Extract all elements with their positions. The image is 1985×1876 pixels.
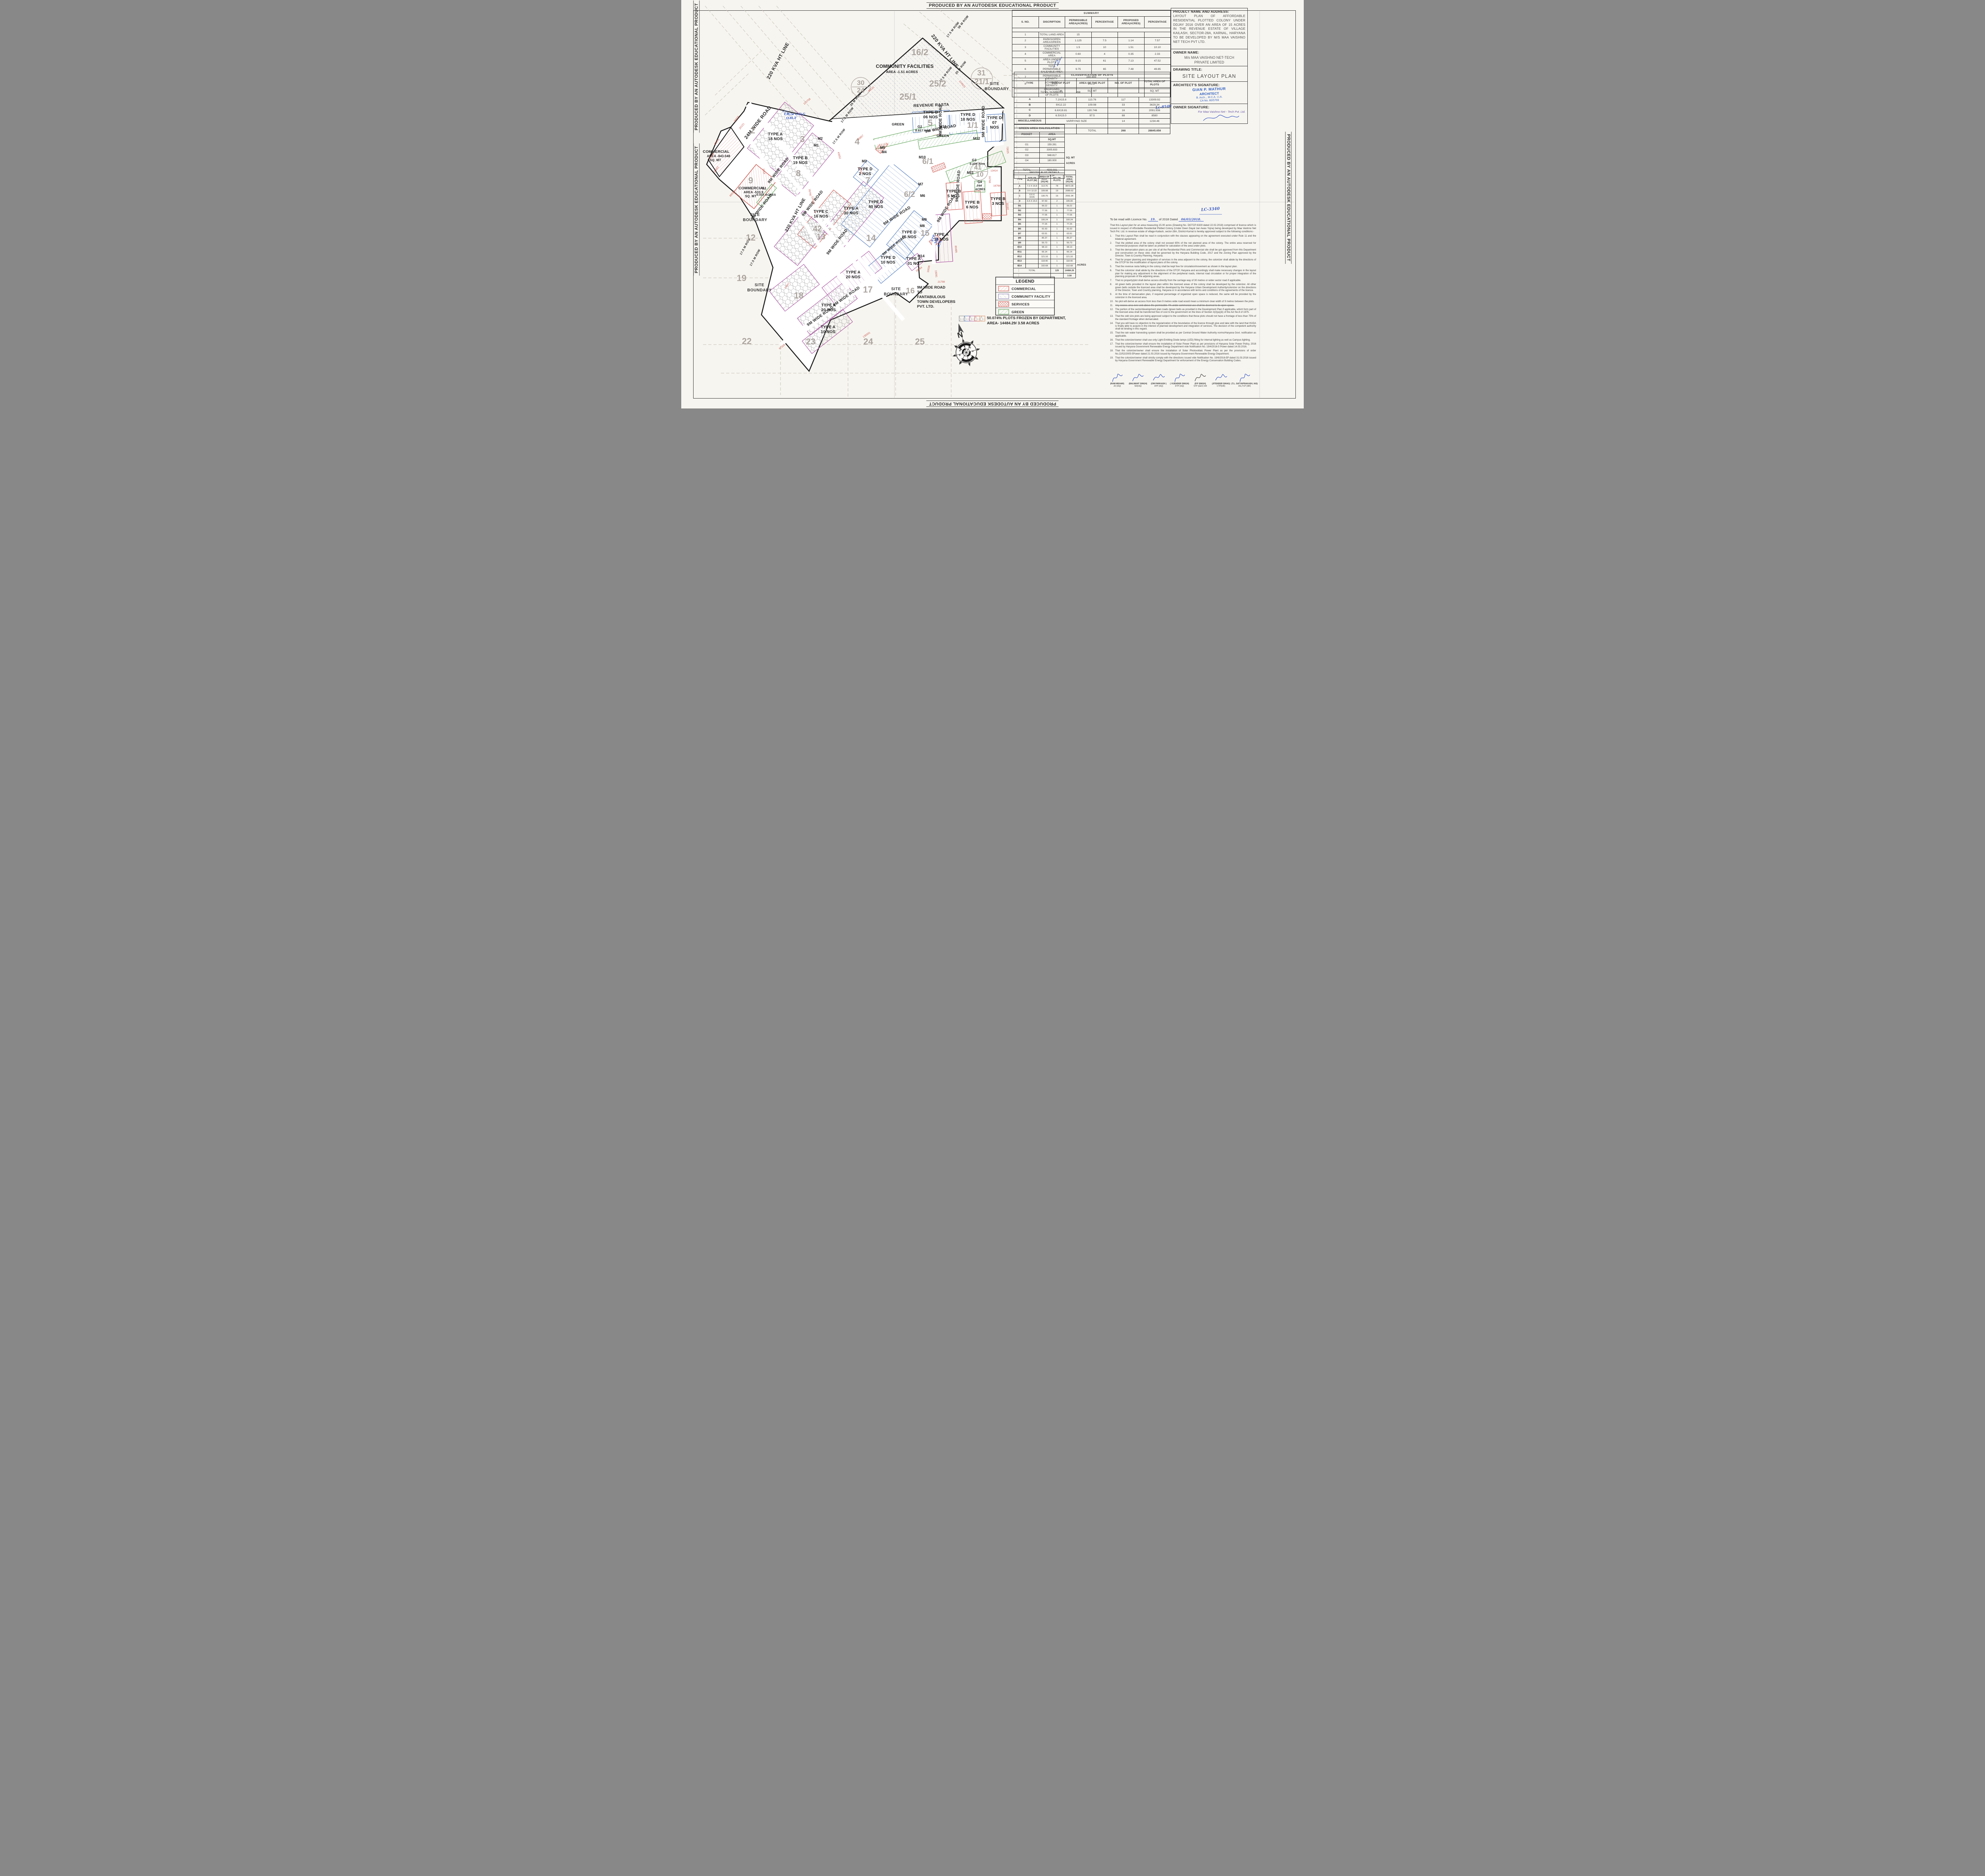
plan-label-dim: 73025 xyxy=(1006,146,1009,154)
cell: 77.05 xyxy=(1038,213,1050,218)
cell: M8 xyxy=(1014,236,1026,241)
cell: 180.000 xyxy=(1039,158,1065,164)
cell: 268 xyxy=(1108,128,1139,134)
cell: 3629.34 xyxy=(1139,102,1170,108)
cell: 98.13 xyxy=(1063,245,1075,250)
cell: 8580 xyxy=(1139,113,1170,119)
cell: 113.76 xyxy=(1077,97,1108,103)
condition-item: 9.At the time of demarcation plan, if re… xyxy=(1110,293,1256,299)
spacer xyxy=(1012,28,1171,32)
plan-label-site: BOUNDARY xyxy=(747,288,771,293)
frozen-header: TOTAL AREA [SQ.M] xyxy=(1063,175,1075,184)
cell: 121.16 xyxy=(1063,254,1075,259)
cell: 28845.656 xyxy=(1139,128,1170,134)
condition-item: 12.The portion of the sector/development… xyxy=(1110,308,1256,314)
plan-label-area: G2 xyxy=(917,125,922,129)
plan-label-road: 36 M ROW xyxy=(957,14,969,29)
signature-squiggle xyxy=(1214,372,1228,383)
cell: 77.56 xyxy=(1063,208,1075,213)
plan-label-mp: M5 xyxy=(880,146,885,150)
plan-label-fant: TOWN DEVELOPERS xyxy=(917,300,955,304)
cell: 1 xyxy=(1051,213,1063,218)
cell: 102.68 xyxy=(1063,264,1075,268)
plan-label-mp: M3 xyxy=(862,159,867,163)
condition-item: 8.All green belts provided in the layout… xyxy=(1110,283,1256,292)
cell: M11 xyxy=(1014,250,1026,254)
cell: G3 xyxy=(1014,153,1040,158)
plan-label-area: 6 NOS xyxy=(966,205,978,210)
cell: 77.56 xyxy=(1038,208,1050,213)
cell: M10 xyxy=(1014,245,1026,250)
plan-label-site: SITE xyxy=(891,287,901,291)
cell: D xyxy=(1014,199,1026,204)
project-heading: PROJECT NAME AND ADDRESS: xyxy=(1173,10,1245,13)
plan-label-site: SITE xyxy=(990,82,999,86)
summary-title: SUMMARY xyxy=(1012,10,1171,17)
licence-prefix: To be read with Licence No. xyxy=(1110,218,1147,221)
plan-label-kh: 8 xyxy=(796,168,801,178)
signature-1: (RAM MEHAR)JD (HQ) xyxy=(1107,372,1127,387)
plan-label-road: 9M WIDE ROAD xyxy=(981,106,986,137)
cell: 1 xyxy=(1051,245,1063,250)
cell: 7.57 xyxy=(1144,37,1171,44)
cell: 7.5 xyxy=(1091,37,1118,44)
plan-label-area: COMMUNITY FACILITIES xyxy=(876,64,934,69)
plan-label-kh: 22 xyxy=(742,336,752,346)
plan-label-road: 9M WIDE ROAD xyxy=(939,104,943,136)
plan-label-kh: 18 xyxy=(794,291,804,300)
cell: 7.2 X 15.8 xyxy=(1026,184,1038,189)
plan-label-site: SITE xyxy=(755,283,764,287)
cell: SQ.MT xyxy=(1039,137,1065,142)
cell: 6.5X15.0 xyxy=(1045,113,1077,119)
plan-label-kh: 1/1 xyxy=(967,121,978,130)
cell: 159.281 xyxy=(1039,142,1065,148)
legend-swatch-community xyxy=(998,294,1009,299)
plan-label-dim: 15091 xyxy=(934,270,938,278)
cell: 14 xyxy=(1108,119,1139,124)
plan-label-dim: 10036 xyxy=(927,265,931,273)
plan-label-mp: M11 xyxy=(967,171,973,175)
classification-unit: M xyxy=(1045,89,1077,93)
cell: 109.98 xyxy=(1038,189,1050,193)
condition-item: 3.That the demarcation plans as per site… xyxy=(1110,248,1256,257)
condition-item: 4.That for proper planning and integrati… xyxy=(1110,258,1256,264)
cell: VARRYING SIZE xyxy=(1045,119,1108,124)
plan-label-area: COMMERCIAL xyxy=(703,150,729,154)
cell: 1 xyxy=(1051,250,1063,254)
frozen-header: SIZE OF PLOT [M] xyxy=(1026,175,1038,184)
frozen-header: NO. OF PLOTS xyxy=(1051,175,1063,184)
cell: M1 xyxy=(1014,204,1026,208)
cell: M5 xyxy=(1014,222,1026,227)
cell: 1 xyxy=(1051,204,1063,208)
cell: 91.63 xyxy=(1038,227,1050,231)
cell: 2 xyxy=(1051,199,1063,204)
licence-number: 19. xyxy=(1148,218,1158,221)
plan-label-kh: 13 xyxy=(817,233,825,241)
plan-label-kh: 5 xyxy=(928,118,933,128)
cell: 117 xyxy=(1108,97,1139,103)
cell xyxy=(1014,164,1065,168)
cell: 2089.62 xyxy=(1063,189,1075,193)
cell: 130.746 xyxy=(1077,108,1108,114)
plan-label-road: 17.5 M ROW xyxy=(749,248,761,266)
cell: 1234.46 xyxy=(1139,119,1170,124)
cell: 55.73 xyxy=(1038,241,1050,245)
cell xyxy=(1014,274,1051,278)
cell: 9X12.22 xyxy=(1045,102,1077,108)
cell: 100.24 xyxy=(1063,218,1075,222)
cell: 1.51 xyxy=(1118,44,1145,51)
signature-4: ( VIJENDER SINGH)DTP (HQ) xyxy=(1169,372,1190,387)
plan-label-area: TYPE B xyxy=(793,156,807,160)
cell: 121.16 xyxy=(1038,254,1050,259)
cell: TOTAL xyxy=(1014,268,1051,274)
cell: 1 xyxy=(1051,241,1063,245)
cell: M14 xyxy=(1014,264,1026,268)
plan-label-mp: M4 xyxy=(882,150,887,154)
green-title: GREEN AREA CALCULATION xyxy=(1014,125,1065,132)
frozen-plots-swatch xyxy=(959,316,985,321)
legend-item: COMMUNITY FACILITY xyxy=(1012,295,1050,299)
cell xyxy=(1077,124,1108,128)
cell: 100.24 xyxy=(1038,218,1050,222)
plan-label-area: TYPE A xyxy=(821,303,836,308)
plan-label-kh: 16 xyxy=(906,287,915,295)
plan-label-kh: 30 xyxy=(857,79,865,87)
plan-label-area: 18 NOS xyxy=(768,137,783,141)
plan-label-area: TYPE D xyxy=(902,230,916,235)
cell xyxy=(1144,32,1171,38)
cell: 61 xyxy=(1091,58,1118,64)
plan-label-kh: 23 xyxy=(806,337,815,347)
cell: 9.15 xyxy=(1065,58,1092,64)
cell: 1 xyxy=(1051,227,1063,231)
cell: M13 xyxy=(1014,259,1026,264)
cell: 55.73 xyxy=(1063,241,1075,245)
plan-label-cmp: N xyxy=(956,331,964,340)
plan-label-area: 10 NOS xyxy=(881,260,896,265)
plan-label-area: TYPE B xyxy=(991,197,1005,201)
owner-heading: OWNER NAME: xyxy=(1173,50,1245,54)
plan-label-area: TYPE A xyxy=(934,233,949,237)
legend-swatch-services xyxy=(998,302,1009,306)
cell xyxy=(1108,124,1139,128)
plan-label-area: TYPE A xyxy=(846,270,861,275)
plan-label-road: 17.5 M ROW xyxy=(946,21,960,38)
plan-label-area: TYPE B xyxy=(965,200,979,205)
plan-label-area: TYPE A xyxy=(768,132,783,137)
cell: 66.14 xyxy=(1038,250,1050,254)
plan-label-area: SQ. MT xyxy=(745,195,757,198)
condition-item: 16.That the colonizer/owner shall use on… xyxy=(1110,339,1256,341)
condition-item: 17.That the colonizer/owner shall ensure… xyxy=(1110,343,1256,349)
plan-label-area: G4 xyxy=(977,180,982,184)
cell: 118.40 xyxy=(1038,259,1050,264)
signature-5: (P.P SINGH)STP (E&V) HR xyxy=(1190,372,1210,387)
owner-signature-section: OWNER SIGNATURE: For Maa Vaishno Net - T… xyxy=(1171,104,1247,123)
cell: 4 xyxy=(1091,51,1118,58)
cell xyxy=(1139,124,1170,128)
project-name-section: PROJECT NAME AND ADDRESS: LAYOUT PLAN OF… xyxy=(1171,8,1247,49)
drawing-title: SITE LAYOUT PLAN xyxy=(1173,73,1245,79)
cell: M7 xyxy=(1014,231,1026,236)
cell: 10 xyxy=(1091,44,1118,51)
plan-label-kh: 2 xyxy=(750,125,755,135)
classification-header: TYPE xyxy=(1014,78,1046,89)
architect-stamp: GIAN P. MATHUR ARCHITECT B. Arch.., M.C.… xyxy=(1173,87,1245,104)
plan-label-site: BOUNDARY xyxy=(884,292,908,297)
plan-label-mp: M2 xyxy=(818,137,823,141)
condition-item: 15.That the rain water harvesting system… xyxy=(1110,331,1256,337)
owner-name-section: OWNER NAME: M/s MAA VAISHNO NET-TECH PRI… xyxy=(1171,49,1247,66)
cell: 1.14 xyxy=(1118,37,1145,44)
title-block: PROJECT NAME AND ADDRESS: LAYOUT PLAN OF… xyxy=(1171,8,1248,124)
cell: 91.63 xyxy=(1063,227,1075,231)
classification-unit xyxy=(1014,89,1046,93)
licence-line: To be read with Licence No. 19. of 2018 … xyxy=(1110,218,1256,221)
plan-label-area: GREEN xyxy=(892,122,904,126)
condition-item: 18.That the colonizer/owner shall ensure… xyxy=(1110,349,1256,355)
cell: 109.98 xyxy=(1077,102,1108,108)
signature-7: (T.L. SATYAPRAKASH, IAS)DG,TCP (HR) xyxy=(1231,372,1258,387)
cell: B xyxy=(1014,189,1026,193)
cell: 10.10 xyxy=(1144,44,1171,51)
plan-label-kh: 42 xyxy=(813,225,822,233)
plan-label-kh: 24 xyxy=(857,87,865,94)
condition-item: 19.That the colonizer/owner shall strict… xyxy=(1110,356,1256,362)
owner-name-line1: M/s MAA VAISHNO NET-TECH xyxy=(1173,55,1245,60)
cell: 4 xyxy=(1012,51,1039,58)
condition-item: 13.That the odd size plots are being app… xyxy=(1110,315,1256,321)
cell: 1.5 xyxy=(1065,44,1092,51)
plan-label-kh: 17 xyxy=(863,285,873,295)
plan-label-kh: 6/1 xyxy=(922,157,933,166)
signature-squiggle xyxy=(1131,372,1145,383)
cell: 129 xyxy=(1051,268,1063,274)
classification-title: CLASSIFICATION OF PLOTS xyxy=(1014,72,1170,78)
plan-label-area: COMMERCIAL xyxy=(738,186,765,191)
plan-label-hand: O.H.T xyxy=(786,116,797,120)
plan-label-dim: 80485 xyxy=(954,246,958,253)
owner-signature-squiggle xyxy=(1201,114,1241,122)
condition-item: 14.That you will have no objection to th… xyxy=(1110,322,1256,331)
north-compass xyxy=(945,320,984,370)
frozen-note-line2: AREA- 14484.29/ 3.58 ACRES xyxy=(987,321,1039,326)
frozen-acres-unit: ACRES xyxy=(1077,264,1086,266)
cell: 15 xyxy=(1065,32,1092,38)
plan-label-area: 20 NOS xyxy=(821,308,836,312)
cell: 97.5 xyxy=(1077,113,1108,119)
cell: A xyxy=(1014,184,1026,189)
plan-label-dim: 67071 xyxy=(973,219,981,221)
green-header: POCKET xyxy=(1014,132,1040,137)
plan-label-site: BOUNDARY xyxy=(985,87,1009,91)
legend-title: LEGEND xyxy=(1016,279,1034,284)
cell: 3.58 xyxy=(1063,274,1075,278)
plan-label-area: TYPE A xyxy=(844,206,859,211)
cell: TOTAL xyxy=(1077,128,1108,134)
cell: M4 xyxy=(1014,218,1026,222)
plan-label-area: ACRES xyxy=(975,188,985,191)
cell: 1 xyxy=(1012,32,1039,38)
cell: 19 xyxy=(1051,189,1063,193)
cell: M3 xyxy=(1014,213,1026,218)
plan-label-area: 07 xyxy=(992,121,997,125)
cell: M2 xyxy=(1014,208,1026,213)
frozen-header: AREA OF PLOT [SQ.M] xyxy=(1038,175,1050,184)
plan-label-mp: M9 xyxy=(922,218,927,221)
plan-label-area: G1 xyxy=(762,186,767,190)
plan-label-kh: 6/2 xyxy=(904,190,915,199)
cell: 1 xyxy=(1051,254,1063,259)
cell xyxy=(1026,213,1038,218)
plan-label-kh: 7 xyxy=(865,175,870,185)
cell xyxy=(1026,222,1038,227)
cell: 2091.94 xyxy=(1063,193,1075,199)
summary-header: PERCENTAGE xyxy=(1144,17,1171,28)
plan-label-mp: M13 xyxy=(939,125,946,129)
plan-label-area: 20 NOS xyxy=(846,275,861,279)
plan-label-mp: M14 xyxy=(917,254,925,258)
plan-label-area: G3 xyxy=(972,158,977,162)
licence-mid: of 2018 Dated xyxy=(1159,218,1178,221)
condition-item: 11.Any excess area over and above the pe… xyxy=(1110,304,1256,307)
condition-item: 7.That no property/plot shall derive acc… xyxy=(1110,279,1256,282)
plan-label-area: 30 NOS xyxy=(844,211,859,216)
cell: 1 xyxy=(1051,259,1063,264)
cell xyxy=(1026,245,1038,250)
cell: M6 xyxy=(1014,227,1026,231)
frozen-plot-details-table: FROZEN PLOT DETAILSTYPESIZE OF PLOT [M]A… xyxy=(1013,170,1076,278)
plan-label-area: TYPE C xyxy=(813,210,828,214)
cell: G4 xyxy=(1014,158,1040,164)
plan-label-area: 0.817 Acre xyxy=(915,129,931,132)
classification-unit xyxy=(1108,89,1139,93)
cell: COMMERCIAL AREA xyxy=(1039,51,1065,58)
cell xyxy=(1026,218,1038,222)
plan-label-kh: 10 xyxy=(976,171,984,178)
plan-label-area: 40 NOS xyxy=(869,205,883,209)
summary-header: PERCENTAGE xyxy=(1091,17,1118,28)
cell: 7.13 xyxy=(1118,58,1145,64)
architect-signature-section: ARCHITECT'S SIGNATURE: GIAN P. MATHUR AR… xyxy=(1171,82,1247,104)
cell: 6.6 X 19.81 xyxy=(1026,193,1038,199)
cell: 102.68 xyxy=(1038,264,1050,268)
cell: TOTAL LAND AREA xyxy=(1039,32,1065,38)
plan-label-kh: 16/2 xyxy=(912,47,929,57)
plan-label-kh: 15 xyxy=(921,229,929,238)
drawing-sheet: PRODUCED BY AN AUTODESK EDUCATIONAL PROD… xyxy=(681,0,1304,408)
plan-label-area: TYPE D xyxy=(868,200,883,204)
plan-label-area: 10 NOS xyxy=(821,330,836,334)
signature-3: (OM PARKASH )ATP (HQ) xyxy=(1149,372,1169,387)
plan-label-fant: TO xyxy=(917,290,922,295)
plan-label-kh: 25/1 xyxy=(900,92,917,102)
plan-label-fant: PVT. LTD. xyxy=(917,304,934,309)
cell: AREA UNDER PLOTS xyxy=(1039,58,1065,64)
signature-2: (BALWANT SINGH)SD(HQ) xyxy=(1127,372,1148,387)
frozen-note-line1: 50.074% PLOTS FROZEN BY DEPARTMENT, xyxy=(987,316,1066,320)
cell: 99.22 xyxy=(1063,204,1075,208)
cell xyxy=(1026,227,1038,231)
cell xyxy=(1026,264,1038,268)
cell: 6.5 X 15.0 xyxy=(1026,199,1038,204)
cell xyxy=(1014,137,1040,142)
cell: 63.91 xyxy=(1038,231,1050,236)
plan-label-mp: M8 xyxy=(920,224,925,228)
plan-label-kh: 25 xyxy=(915,337,925,347)
plan-label-kh: 31 xyxy=(977,69,986,77)
green-total-unit: SQ. MT xyxy=(1066,156,1075,159)
cell: 8873.28 xyxy=(1063,184,1075,189)
condition-item: 10.No plot will derive an access from le… xyxy=(1110,300,1256,303)
summary-header: DISCRIPTION xyxy=(1039,17,1065,28)
cell: 66.14 xyxy=(1063,250,1075,254)
frozen-table-panel: FROZEN PLOT DETAILSTYPESIZE OF PLOT [M]A… xyxy=(1013,170,1076,278)
plan-label-area: NOS xyxy=(990,125,999,130)
cell xyxy=(1026,250,1038,254)
condition-item: 6.That the colonizer shall abide by the … xyxy=(1110,269,1256,278)
cell: D xyxy=(1014,113,1046,119)
cell xyxy=(1091,32,1118,38)
cell: 1 xyxy=(1051,231,1063,236)
plan-label-kh: 25/2 xyxy=(929,79,946,89)
cell: M12 xyxy=(1014,254,1026,259)
approval-signatures: (RAM MEHAR)JD (HQ) (BALWANT SINGH)SD(HQ)… xyxy=(1107,372,1258,387)
plan-label-kh: 14 xyxy=(866,233,876,243)
plan-label-area: TYPE D xyxy=(923,110,938,115)
classification-header: NO. OF PLOT xyxy=(1108,78,1139,89)
cell: 88 xyxy=(1108,113,1139,119)
cell: PARKS/OPEN AREA/GREEN xyxy=(1039,37,1065,44)
cell: 0.60 xyxy=(1065,51,1092,58)
plan-label-site: BOUNDARY xyxy=(743,218,767,222)
classification-unit: SQ. MT xyxy=(1139,89,1170,93)
cell: A xyxy=(1014,97,1046,103)
cell xyxy=(1026,254,1038,259)
classification-header: AREA OF THE PLOT xyxy=(1077,78,1108,89)
plan-label-area: 16 NOS xyxy=(814,214,829,219)
cell: 85.37 xyxy=(1038,236,1050,241)
plan-label-road: 220 KVA HT LINE xyxy=(765,41,790,80)
signature-6: (JITENDER SIHAG)CTP(HR) xyxy=(1210,372,1231,387)
plan-label-hand: T.W/w G.D.G xyxy=(784,112,806,116)
legend-item: SERVICES xyxy=(1012,302,1029,306)
cell: 6.6X19.81 xyxy=(1045,108,1077,114)
frozen-title: FROZEN PLOT DETAILS xyxy=(1014,170,1076,175)
owner-signature-text: For Maa Vaishno Net - Tech Pvt. Ltd. xyxy=(1173,110,1245,114)
plan-label-dim: 13414 xyxy=(991,169,998,172)
plan-label-mp: M12 xyxy=(973,137,980,141)
cell: 1 xyxy=(1051,264,1063,268)
cell: 9 X 12.22 xyxy=(1026,189,1038,193)
cell xyxy=(1026,259,1038,264)
green-acres-unit: ACRES xyxy=(1066,162,1075,165)
legend-item: GREEN xyxy=(1012,310,1024,314)
plan-label-kh: 19 xyxy=(737,273,746,283)
cell xyxy=(1026,231,1038,236)
summary-header: S. NO. xyxy=(1012,17,1039,28)
green-header: AREA xyxy=(1039,132,1065,137)
cell: 1 xyxy=(1051,208,1063,213)
cell: 33 xyxy=(1108,102,1139,108)
cell: 14484.29 xyxy=(1063,268,1075,274)
cell xyxy=(1026,236,1038,241)
cell: 7.2X15.8 xyxy=(1045,97,1077,103)
legend-swatch-commercial xyxy=(998,286,1009,291)
